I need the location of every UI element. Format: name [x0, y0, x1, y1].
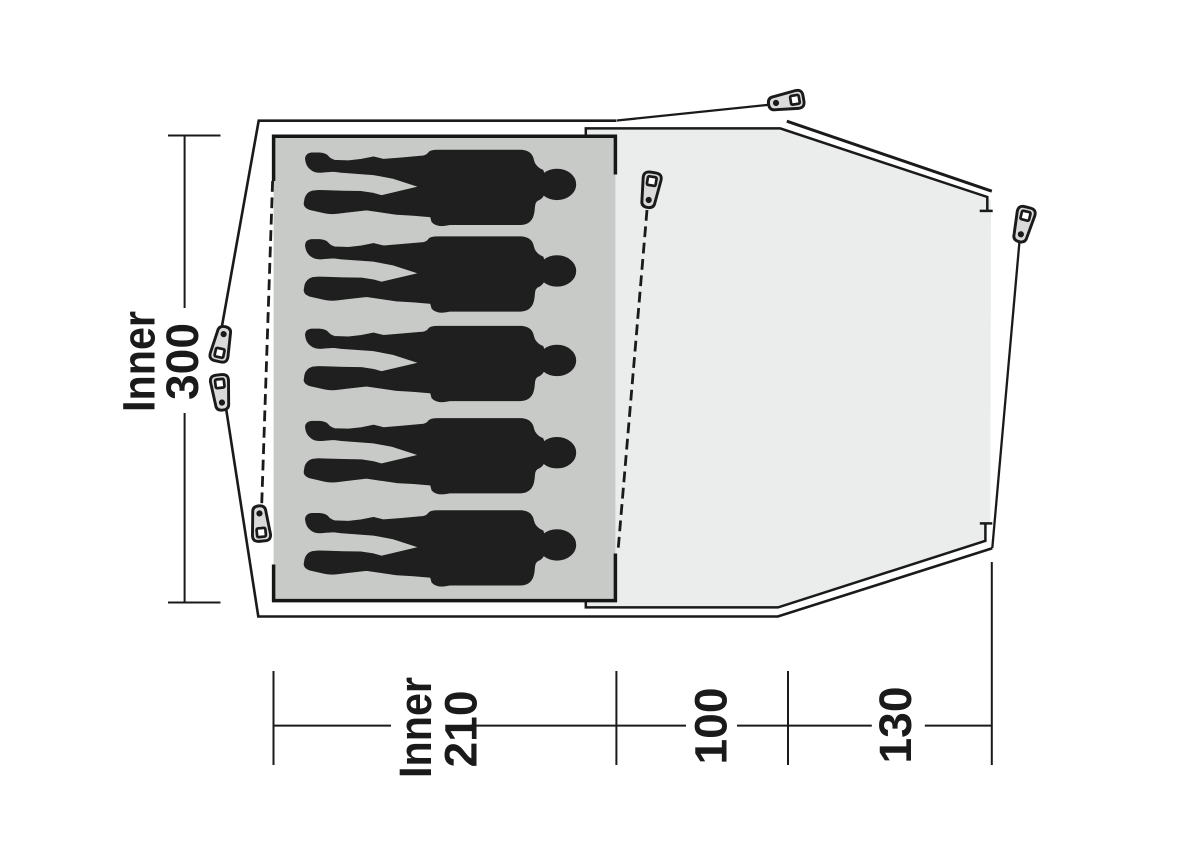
svg-text:Inner: Inner: [390, 677, 441, 778]
svg-text:210: 210: [436, 691, 487, 768]
svg-text:100: 100: [686, 688, 737, 765]
svg-text:300: 300: [157, 323, 208, 400]
svg-text:130: 130: [870, 687, 921, 764]
